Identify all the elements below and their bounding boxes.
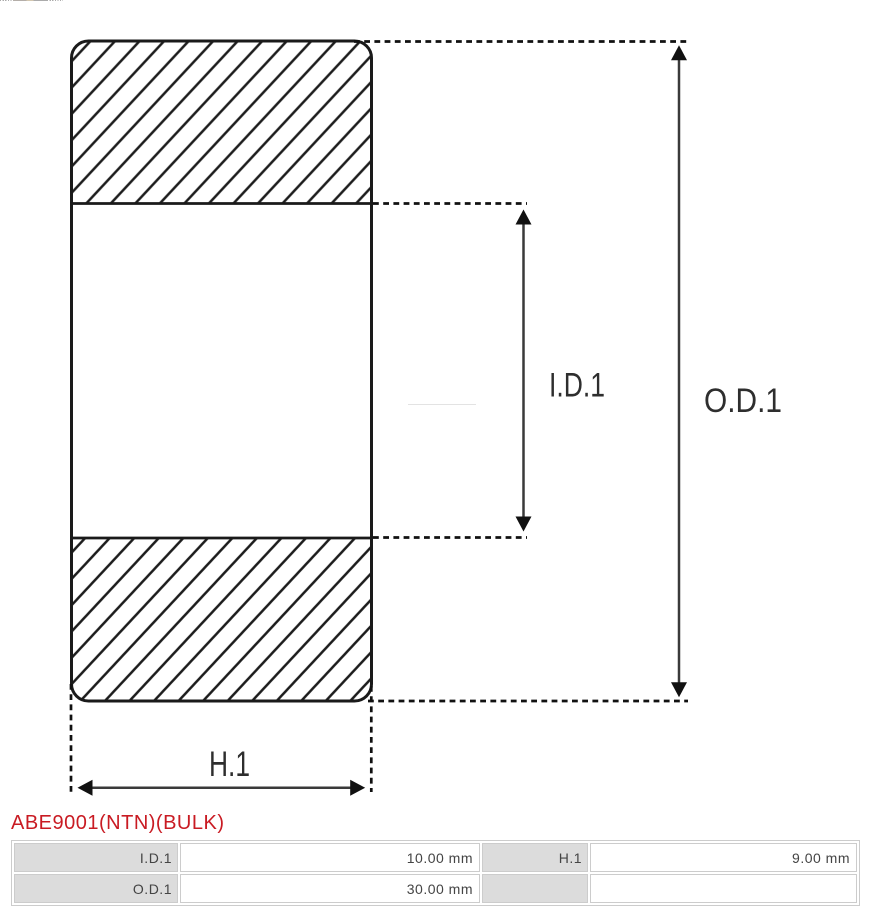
svg-text:H.1: H.1 (209, 745, 250, 784)
svg-text:O.D.1: O.D.1 (704, 382, 782, 420)
svg-text:I.D.1: I.D.1 (549, 367, 605, 405)
